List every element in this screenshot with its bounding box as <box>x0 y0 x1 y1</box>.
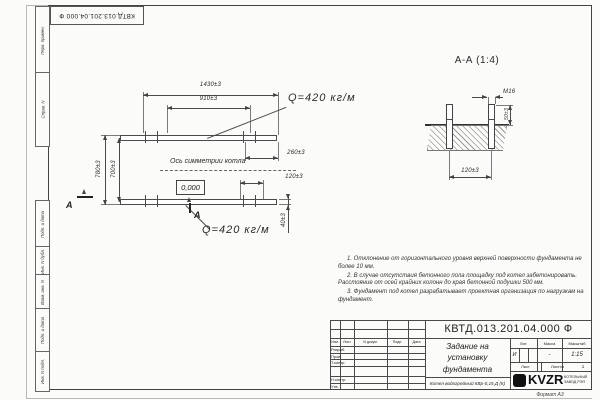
dim-line-120-section <box>449 177 491 178</box>
note-2: 2. В случае отсутствия бетонного пола пл… <box>338 273 590 289</box>
dim-arrow <box>495 95 500 99</box>
section-arrow <box>187 197 191 202</box>
ext-line <box>491 151 492 180</box>
strip-box-podp-data-2: Подп. и дата <box>35 308 50 353</box>
mass-label: Масса <box>537 338 562 348</box>
strip-label: Подп. и дата <box>40 317 45 344</box>
sheets-value: 1 <box>574 362 592 371</box>
dim-arrow <box>245 106 250 110</box>
row-nkontr: Н.контр. <box>330 376 355 383</box>
dim-line-910 <box>167 108 250 109</box>
ext-line <box>278 92 279 135</box>
top-designation-stamp: КВТД.013.201.04.000 Ф <box>50 6 144 25</box>
col-list: Лист <box>340 338 354 346</box>
sheet-label: Лист <box>510 362 541 371</box>
dim-arrow <box>273 93 278 97</box>
dim-arrow <box>240 181 245 185</box>
dim-arrow <box>167 106 172 110</box>
dim-text-700: 700±3 <box>111 154 117 184</box>
ext-line <box>143 92 144 133</box>
kvzr-logo-text: KVZR <box>528 372 563 387</box>
title-block-line <box>330 329 425 330</box>
col-podp: Подп. <box>387 338 408 346</box>
dim-line-40 <box>288 194 289 233</box>
note-1: 1. Отклонение от горизонтального уровня … <box>338 256 590 272</box>
drawing-designation: КВТД.013.201.04.000 Ф <box>425 320 592 338</box>
bolt-tick <box>145 131 146 143</box>
dim-arrow <box>449 175 454 179</box>
symmetry-axis-line <box>160 170 296 171</box>
bolt-tick <box>157 131 158 143</box>
row-razrab: Разраб. <box>330 346 355 353</box>
dim-arrow <box>103 200 107 205</box>
title-block-line <box>330 366 425 367</box>
foundation-block-hatched <box>427 125 507 151</box>
scale-label: Масштаб <box>562 338 592 348</box>
dim-text-120-section: 120±3 <box>450 168 490 174</box>
top-designation-text: КВТД.013.201.04.000 Ф <box>59 12 135 19</box>
drawing-sheet: КВТД.013.201.04.000 Ф Перв. примен. Спра… <box>0 0 600 400</box>
bolt-size-label: М16 <box>503 89 515 95</box>
elevation-value: 0,000 <box>181 183 200 192</box>
row-utv: Утв. <box>330 383 355 390</box>
dim-text-1430: 1430±3 <box>143 82 278 88</box>
anchor-bolt <box>488 104 495 149</box>
row-tkontr: Т.контр. <box>330 359 355 366</box>
load-label-top: Q=420 кг/м <box>288 92 356 104</box>
bottom-rail <box>120 199 277 205</box>
title-block-line <box>519 348 520 362</box>
dim-text-260: 260±3 <box>284 150 308 156</box>
document-title-line: Задание на <box>446 341 489 352</box>
strip-box-podp-data-1: Подп. и дата <box>35 200 50 248</box>
dim-arrow <box>117 197 121 202</box>
ext-line <box>278 142 279 161</box>
scale-value: 1:15 <box>562 348 592 362</box>
ext-line <box>263 180 264 199</box>
dim-text-910: 910±3 <box>167 96 250 102</box>
bolt-tick <box>255 131 256 143</box>
section-letter-left: А <box>66 200 73 210</box>
bolt-tick <box>157 195 158 207</box>
strip-box-inv-dubl: Инв. N дубл. <box>35 246 50 276</box>
dim-arrow <box>273 156 278 160</box>
product-name: Котел водогрейный КВр-0,15 Д (К) <box>425 377 510 390</box>
strip-box-perv-primen: Перв. примен. <box>35 6 50 74</box>
sheet-edge-bottom <box>26 398 592 399</box>
kvzr-logo-emblem <box>513 374 526 387</box>
dim-arrow <box>286 194 290 199</box>
ext-line <box>488 97 489 104</box>
dim-text-50: 50±3 <box>504 99 510 129</box>
kvzr-logo-sub2: ЗАВОД РЭП <box>564 380 585 384</box>
dim-arrow <box>117 138 121 143</box>
load-label-bottom: Q=420 кг/м <box>202 224 270 236</box>
strip-label: Инв. N дубл. <box>40 249 45 274</box>
dim-arrow <box>258 181 263 185</box>
bolt-thread-line <box>488 119 495 120</box>
dim-text-40: 40±3 <box>281 205 287 235</box>
top-rail <box>120 135 277 141</box>
title-block-line <box>387 320 388 390</box>
col-ndokum: N докум. <box>354 338 387 346</box>
dim-line-780 <box>105 135 106 205</box>
ext-line <box>250 105 251 133</box>
strip-label: Перв. примен. <box>40 26 45 55</box>
dim-arrow <box>482 95 487 99</box>
bolt-tick <box>243 195 244 207</box>
section-title: А-А (1:4) <box>432 55 522 66</box>
lit-label: Лит. <box>510 338 537 348</box>
document-title-line: установку <box>448 352 488 363</box>
dim-arrow <box>486 175 491 179</box>
sheet-edge-left <box>26 5 27 399</box>
bolt-tick <box>243 131 244 143</box>
bolt-thread-line <box>446 119 453 120</box>
strip-label: Подп. и дата <box>40 211 45 238</box>
ext-line <box>279 199 291 200</box>
sheets-label: Листов <box>541 362 574 371</box>
drawing-screenshot: { "frame": { "stamp_top": "КВТД.013.201.… <box>0 0 600 400</box>
strip-label: Инв. N подл. <box>40 359 45 384</box>
section-arrow <box>82 189 86 194</box>
dim-arrow <box>143 93 148 97</box>
mass-value: - <box>537 348 562 362</box>
strip-label: Взам. инв. N <box>40 279 45 304</box>
bolt-tick <box>255 195 256 207</box>
lit-value: И <box>510 348 519 362</box>
section-letter-center: А <box>194 210 201 220</box>
document-title-line: фундамента <box>443 364 492 375</box>
elevation-mark: 0,000 <box>176 180 205 195</box>
technical-notes: 1. Отклонение от горизонтального уровня … <box>338 256 590 306</box>
dim-arrow <box>245 156 250 160</box>
bolt-tick <box>145 195 146 207</box>
dim-line-700 <box>119 138 120 202</box>
dim-text-120: 120±3 <box>282 174 306 180</box>
col-izm: Изм. <box>330 338 340 346</box>
title-block-line <box>528 348 529 362</box>
kvzr-logo-sub1: КОТЕЛЬНЫЙ <box>564 375 587 379</box>
document-title: Задание на установку фундамента <box>425 340 510 376</box>
dim-arrow <box>103 135 107 140</box>
strip-box-inv-podl: Инв. N подл. <box>35 351 50 392</box>
strip-box-sprav-n: Справ. N <box>35 72 50 147</box>
section-cut-mark <box>189 203 191 213</box>
strip-box-vzam-inv: Взам. инв. N <box>35 274 50 310</box>
strip-label: Справ. N <box>40 101 45 119</box>
title-block-line <box>408 320 409 390</box>
anchor-bolt <box>446 104 453 149</box>
note-3: 3. Фундамент под котел разрабатывает про… <box>338 289 590 305</box>
symmetry-axis-label: Ось симметрии котла <box>170 158 245 165</box>
section-cut-mark <box>77 196 93 198</box>
col-data: Дата <box>408 338 425 346</box>
format-note: Формат А3 <box>520 391 580 399</box>
dim-text-780: 780±3 <box>96 154 102 184</box>
